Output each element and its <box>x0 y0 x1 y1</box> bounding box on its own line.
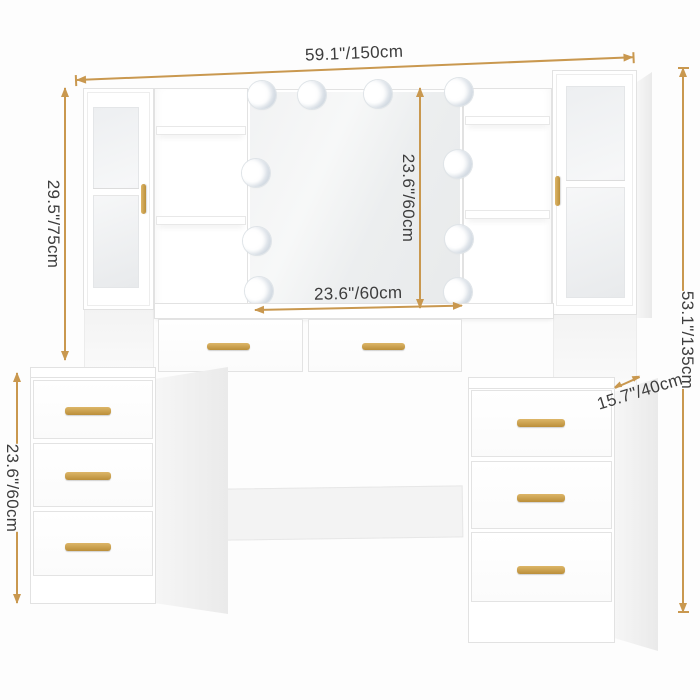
right-pedestal-drawer-1-handle <box>517 419 565 427</box>
mirror-glass <box>250 92 460 306</box>
center-drawer-right-handle <box>362 343 405 350</box>
right-pedestal-side <box>614 378 658 651</box>
led-bulb <box>242 159 270 187</box>
left-open-shelf-1 <box>156 126 246 135</box>
desktop <box>154 303 554 319</box>
left-pedestal-drawer-3-handle <box>65 543 111 551</box>
right-cabinet-inner-shelf <box>566 180 625 188</box>
dim-hutch-height-label: 29.5"/75cm <box>43 180 63 268</box>
left-shelf-column <box>154 88 248 307</box>
left-pedestal-drawer-2-handle <box>65 472 111 480</box>
right-cabinet-handle <box>555 176 560 206</box>
dim-pedestal-height-label: 23.6"/60cm <box>0 444 25 532</box>
left-cabinet-handle <box>141 184 146 214</box>
led-bulb <box>364 80 392 108</box>
center-drawer-left-handle <box>207 343 250 350</box>
left-pedestal-side <box>154 367 228 614</box>
led-bulb <box>243 227 271 255</box>
product-dimension-image: 59.1"/150cm 29.5"/75cm 23.6"/60cm 23.6"/… <box>0 0 700 700</box>
led-bulb <box>298 81 326 109</box>
right-pedestal-drawer-3-handle <box>517 566 565 574</box>
left-under-cabinet-recess <box>84 310 154 373</box>
left-open-shelf-2 <box>156 216 246 225</box>
led-bulb <box>444 150 472 178</box>
right-under-cabinet-recess <box>553 315 637 385</box>
left-cabinet-inner-shelf <box>93 188 139 196</box>
right-open-shelf-1 <box>465 116 550 125</box>
led-bulb <box>445 225 473 253</box>
right-cabinet-glass <box>566 86 625 298</box>
left-pedestal-drawer-1-handle <box>65 407 111 415</box>
right-open-shelf-2 <box>465 210 550 219</box>
dim-overall-width: 59.1"/150cm <box>77 57 633 80</box>
support-beam <box>223 485 464 540</box>
dim-mirror-height-label: 23.6"/60cm <box>398 154 418 242</box>
led-bulb <box>248 81 276 109</box>
right-pedestal-drawer-2-handle <box>517 494 565 502</box>
right-cabinet-side <box>637 72 652 318</box>
led-bulb <box>445 78 473 106</box>
left-cabinet-glass <box>93 107 139 288</box>
